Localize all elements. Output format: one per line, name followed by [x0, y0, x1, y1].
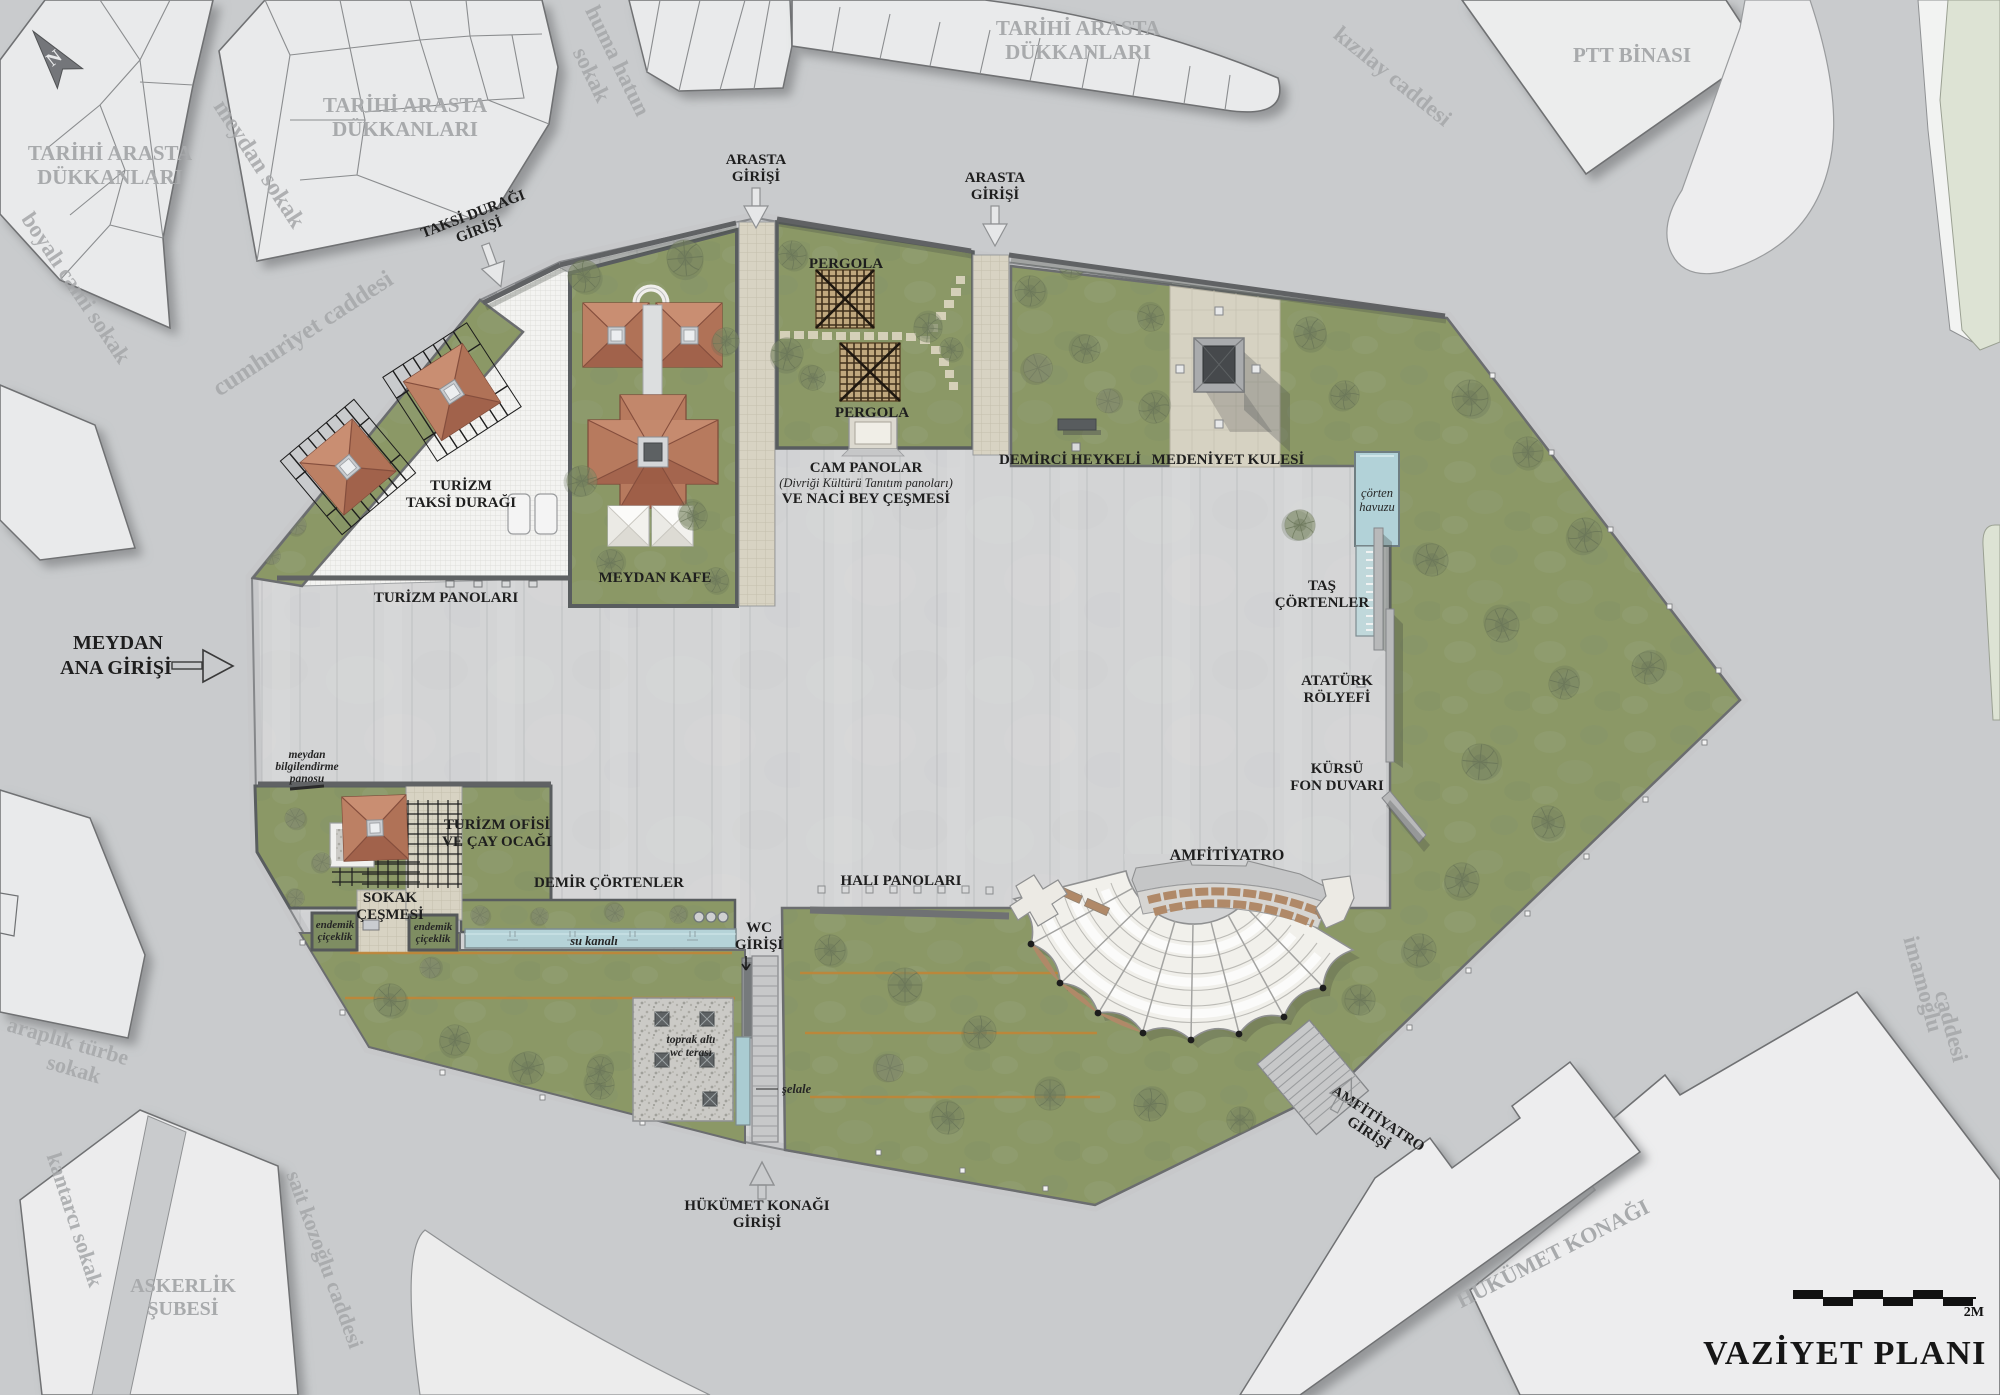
svg-text:MEYDAN KAFE: MEYDAN KAFE	[599, 570, 712, 586]
svg-text:VAZİYET PLANI: VAZİYET PLANI	[1703, 1334, 1987, 1372]
svg-text:çiçeklik: çiçeklik	[416, 933, 451, 945]
svg-text:TURİZM: TURİZM	[430, 477, 492, 494]
svg-text:su kanalı: su kanalı	[569, 934, 618, 948]
svg-text:ANA GİRİŞİ: ANA GİRİŞİ	[60, 655, 172, 679]
svg-text:ARASTA: ARASTA	[965, 170, 1026, 186]
svg-text:ÇÖRTENLER: ÇÖRTENLER	[1275, 594, 1370, 611]
svg-text:panosu: panosu	[289, 773, 325, 785]
svg-text:TAKSİ DURAĞI: TAKSİ DURAĞI	[406, 494, 516, 511]
svg-text:TAŞ: TAŞ	[1308, 578, 1336, 594]
svg-text:TARİHİ ARASTA: TARİHİ ARASTA	[28, 141, 193, 165]
svg-text:FON DUVARI: FON DUVARI	[1290, 778, 1384, 794]
svg-text:GİRİŞİ: GİRİŞİ	[735, 936, 784, 953]
svg-text:TARİHİ ARASTA: TARİHİ ARASTA	[323, 93, 488, 117]
svg-text:çörten: çörten	[1361, 486, 1393, 500]
svg-text:endemik: endemik	[316, 919, 355, 931]
svg-text:ŞUBESİ: ŞUBESİ	[147, 1296, 218, 1320]
svg-text:havuzu: havuzu	[1359, 500, 1394, 514]
svg-text:şelale: şelale	[781, 1082, 812, 1096]
svg-text:(Divriği Kültürü Tanıtım panol: (Divriği Kültürü Tanıtım panoları)	[779, 476, 953, 490]
svg-text:CAM PANOLAR: CAM PANOLAR	[810, 460, 923, 476]
svg-text:TARİHİ ARASTA: TARİHİ ARASTA	[996, 16, 1161, 40]
svg-text:GİRİŞİ: GİRİŞİ	[733, 1214, 782, 1231]
svg-text:RÖLYEFİ: RÖLYEFİ	[1304, 689, 1371, 706]
svg-text:GİRİŞİ: GİRİŞİ	[732, 168, 781, 185]
svg-text:HÜKÜMET KONAĞI: HÜKÜMET KONAĞI	[684, 1197, 829, 1214]
svg-text:PERGOLA: PERGOLA	[835, 405, 909, 421]
svg-text:TURİZM OFİSİ: TURİZM OFİSİ	[444, 816, 550, 833]
svg-text:toprak altı: toprak altı	[667, 1034, 716, 1046]
svg-text:VE ÇAY OCAĞI: VE ÇAY OCAĞI	[442, 833, 552, 850]
svg-text:AMFİTİYATRO: AMFİTİYATRO	[1170, 845, 1285, 864]
svg-text:MEYDAN: MEYDAN	[73, 632, 164, 654]
svg-text:bilgilendirme: bilgilendirme	[275, 761, 338, 773]
svg-text:GİRİŞİ: GİRİŞİ	[971, 186, 1020, 203]
svg-text:TURİZM PANOLARI: TURİZM PANOLARI	[374, 589, 518, 606]
svg-text:WC: WC	[746, 920, 772, 936]
svg-text:PERGOLA: PERGOLA	[809, 256, 883, 272]
svg-text:2M: 2M	[1964, 1305, 1984, 1320]
svg-text:SOKAK: SOKAK	[363, 890, 418, 906]
svg-text:MEDENİYET KULESİ: MEDENİYET KULESİ	[1152, 451, 1305, 468]
svg-text:DÜKKANLARI: DÜKKANLARI	[332, 117, 478, 141]
svg-text:DÜKKANLARI: DÜKKANLARI	[37, 165, 183, 189]
svg-text:endemik: endemik	[414, 921, 453, 933]
svg-text:HALI PANOLARI: HALI PANOLARI	[841, 873, 962, 889]
svg-text:wc terası: wc terası	[670, 1047, 712, 1059]
svg-text:DÜKKANLARI: DÜKKANLARI	[1005, 40, 1151, 64]
svg-text:ASKERLİK: ASKERLİK	[130, 1273, 236, 1297]
svg-text:VE NACİ BEY ÇEŞMESİ: VE NACİ BEY ÇEŞMESİ	[782, 490, 950, 507]
svg-text:meydan: meydan	[288, 749, 325, 761]
svg-text:KÜRSÜ: KÜRSÜ	[1311, 760, 1364, 777]
svg-text:DEMİRCİ HEYKELİ: DEMİRCİ HEYKELİ	[999, 451, 1141, 468]
svg-text:DEMİR ÇÖRTENLER: DEMİR ÇÖRTENLER	[534, 874, 684, 891]
svg-text:ATATÜRK: ATATÜRK	[1301, 672, 1373, 689]
svg-text:çiçeklik: çiçeklik	[318, 931, 353, 943]
svg-text:PTT BİNASI: PTT BİNASI	[1573, 43, 1691, 67]
svg-text:ARASTA: ARASTA	[726, 152, 787, 168]
